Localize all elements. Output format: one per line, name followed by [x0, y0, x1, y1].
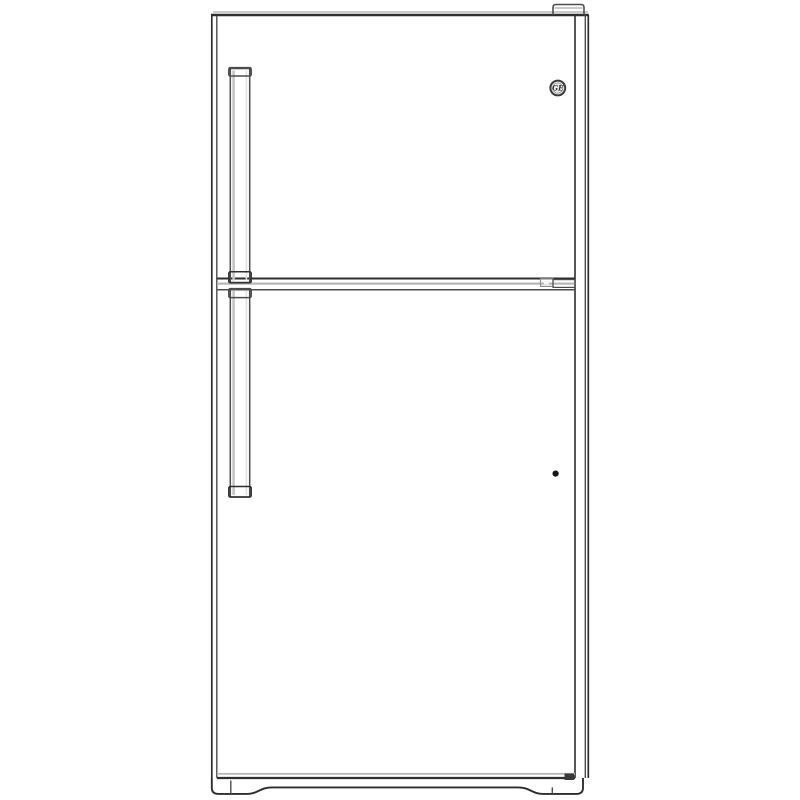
- ge-monogram-logo: GE: [550, 81, 565, 96]
- door-split: [217, 279, 575, 290]
- kick-plate-outline: [212, 778, 583, 794]
- door-bottom: [217, 774, 575, 778]
- refrigerator-cabinet: [211, 12, 589, 778]
- bottom-hinge-pin: [565, 774, 575, 781]
- freezer-door-handle: [229, 68, 251, 283]
- top-hinge-cover: [553, 5, 584, 16]
- refrigerator-line-drawing: GE: [0, 0, 800, 800]
- kick-plate-base: [212, 774, 583, 794]
- product-image-canvas: GE: [0, 0, 800, 800]
- fridge-door-handle: [229, 289, 251, 497]
- ge-logo-text: GE: [552, 84, 564, 93]
- fridge-handle-bottom-cap: [229, 487, 251, 498]
- top-hinge-cover-shape: [553, 5, 584, 16]
- door-indicator-dot: [553, 471, 559, 477]
- freezer-handle-bottom-cap: [229, 272, 251, 283]
- middle-hinge-notch: [544, 281, 549, 285]
